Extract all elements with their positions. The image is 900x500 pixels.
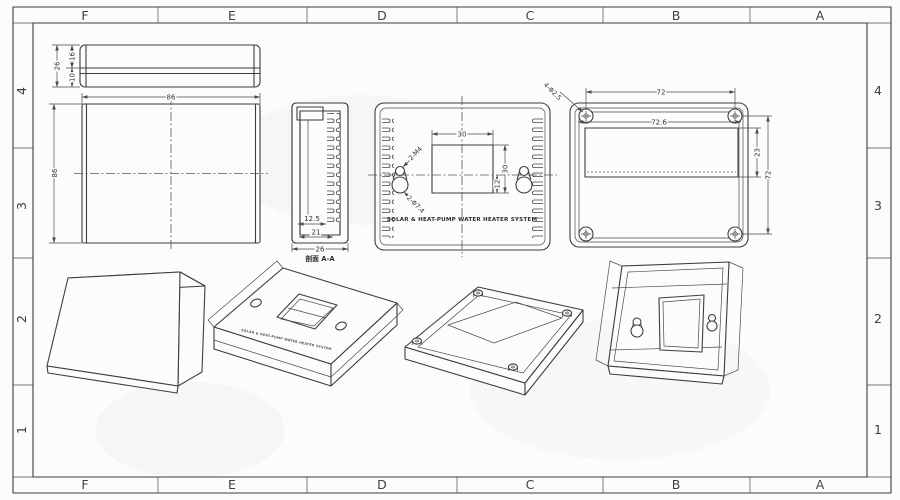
grid-row-label: 2 — [874, 311, 882, 326]
iso-front-cover: SOLAR & HEAT-PUMP WATER HEATER SYSTEM — [208, 261, 403, 386]
grid-col-label: D — [377, 8, 387, 23]
grid-col-label: B — [672, 477, 681, 492]
grid-col-label: F — [81, 477, 88, 492]
grid-col-label: C — [526, 477, 535, 492]
dim-base-span-v: 72 — [765, 171, 773, 180]
grid-col-label: E — [228, 8, 236, 23]
grid-labels-top: F E D C B A — [81, 8, 824, 23]
grid-labels-bottom: F E D C B A — [81, 477, 824, 492]
dim-strip-lower: 10 — [69, 73, 77, 82]
dim-section-d1: 12.5 — [304, 215, 320, 223]
dim-section-d3: 26 — [316, 246, 325, 254]
iso-assembled-box — [47, 272, 205, 393]
dim-front-height: 86 — [51, 168, 59, 177]
drawing-sheet: F E D C B A F E D C B A 4 3 2 1 4 3 2 1 — [0, 0, 900, 500]
section-caption: 剖面 A-A — [305, 254, 335, 263]
grid-col-label: F — [81, 8, 88, 23]
iso4-keyhole-right — [707, 315, 717, 332]
grid-row-label: 1 — [874, 422, 882, 437]
grid-row-label: 3 — [874, 198, 882, 213]
iso1-vent-side — [178, 272, 205, 386]
drawing-canvas: F E D C B A F E D C B A 4 3 2 1 4 3 2 1 — [0, 0, 900, 500]
dim-strip-upper: 16 — [69, 52, 77, 61]
grid-col-label: C — [526, 8, 535, 23]
view-top-strip: 26 16 10 — [52, 45, 260, 87]
system-label: SOLAR & HEAT-PUMP WATER HEATER SYSTEM — [387, 217, 538, 223]
dim-base-span-h: 72 — [657, 89, 666, 97]
dim-base-inner-width: 72.6 — [651, 119, 667, 127]
grid-col-label: D — [377, 477, 387, 492]
dim-strip-total: 26 — [54, 61, 62, 70]
leader-base-holes: 4-Φ2.5 — [542, 81, 563, 102]
grid-labels-left: 4 3 2 1 — [14, 87, 29, 434]
grid-col-label: B — [672, 8, 681, 23]
view-base: 72 72.6 4-Φ2.5 23 72 — [542, 81, 773, 247]
view-section: 12.5 21 26 剖面 A-A — [292, 103, 348, 263]
dim-back-window-height: 30 — [502, 165, 510, 174]
view-back: 30 30 12 2-M4 2-Φ7.4 SOLAR & HEAT-PUMP W… — [368, 96, 557, 257]
iso4-window-opening — [659, 295, 704, 352]
grid-row-label: 2 — [14, 315, 29, 323]
dim-base-window-height: 23 — [754, 148, 762, 157]
grid-col-label: E — [228, 477, 236, 492]
dim-front-width: 86 — [167, 94, 176, 102]
grid-labels-right: 4 3 2 1 — [874, 83, 882, 437]
grid-row-label: 4 — [874, 83, 882, 98]
iso4-keyhole-left — [631, 318, 643, 337]
grid-row-label: 4 — [14, 87, 29, 95]
dim-back-window-width: 30 — [458, 131, 467, 139]
dim-back-offset: 12 — [494, 180, 502, 189]
grid-col-label: A — [816, 477, 825, 492]
dim-section-d2: 21 — [312, 229, 321, 237]
grid-col-label: A — [816, 8, 825, 23]
grid-row-label: 1 — [14, 426, 29, 434]
vent-fins — [327, 113, 340, 225]
grid-row-label: 3 — [14, 202, 29, 210]
iso-back-housing — [596, 261, 743, 384]
screw-bosses — [579, 109, 742, 241]
view-front: 86 86 — [49, 93, 268, 251]
